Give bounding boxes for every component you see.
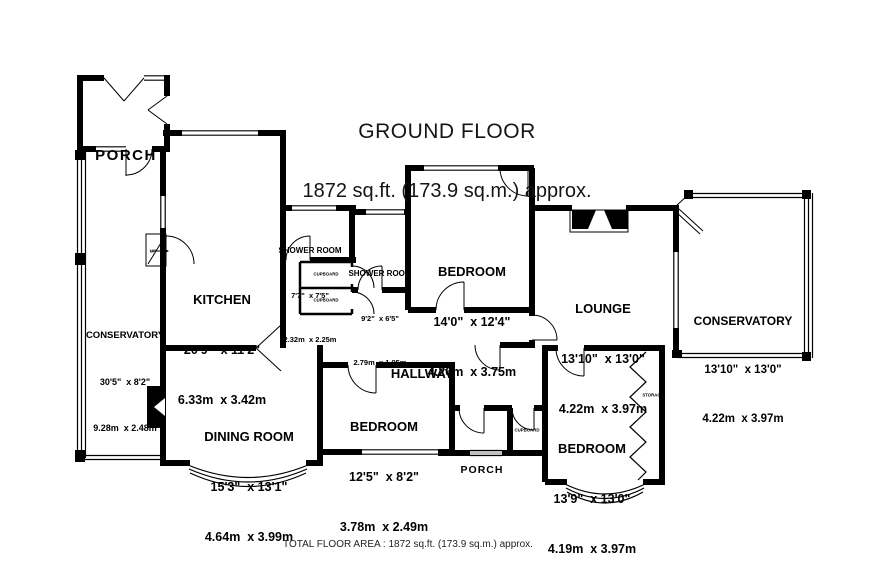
conservatory-post — [75, 150, 85, 160]
total-floor-area: TOTAL FLOOR AREA : 1872 sq.ft. (173.9 sq… — [283, 539, 533, 550]
floor-area: 1872 sq.ft. (173.9 sq.m.) approx. — [302, 180, 591, 203]
conservatory-post — [75, 253, 85, 265]
storage-label: STORAGE — [642, 393, 663, 398]
room-label-porch-bottom: PORCH — [461, 429, 504, 512]
stairs-up-label: UP — [150, 248, 157, 254]
floor-name: GROUND FLOOR — [302, 120, 591, 144]
conservatory-post — [75, 450, 85, 462]
room-label-porch-top: PORCH — [95, 112, 157, 200]
conservatory-post — [802, 352, 811, 361]
floorplan-page: GROUND FLOOR 1872 sq.ft. (173.9 sq.m.) a… — [0, 0, 886, 577]
room-label-conservatory-right: CONSERVATORY 13'10" x 13'0" 4.22m x 3.97… — [694, 279, 793, 461]
room-label-dining-room: DINING ROOM 15'3" x 13'1" 4.64m x 3.99m — [204, 394, 294, 577]
room-label-conservatory-left: CONSERVATORY 30'5" x 8'2" 9.28m x 2.48m — [86, 295, 164, 469]
conservatory-post — [802, 190, 811, 199]
cupboard-label-top: CUPBOARD — [314, 272, 339, 277]
room-label-bedroom-right: BEDROOM 13'9" x 13'0" 4.19m x 3.97m — [548, 406, 636, 577]
conservatory-post — [672, 350, 682, 358]
plan-footer: TOTAL FLOOR AREA : 1872 sq.ft. (173.9 sq… — [283, 503, 533, 577]
conservatory-post — [684, 190, 693, 199]
cupboard-label-bottom: CUPBOARD — [314, 298, 339, 303]
fireplace-icon — [604, 210, 628, 229]
room-label-shower-room-1: SHOWER ROOM 7'7" x 7'5" 2.32m x 2.25m — [278, 211, 341, 380]
plan-title: GROUND FLOOR 1872 sq.ft. (173.9 sq.m.) a… — [302, 84, 591, 239]
cupboard-label-hall: CUPBOARD — [515, 428, 540, 433]
